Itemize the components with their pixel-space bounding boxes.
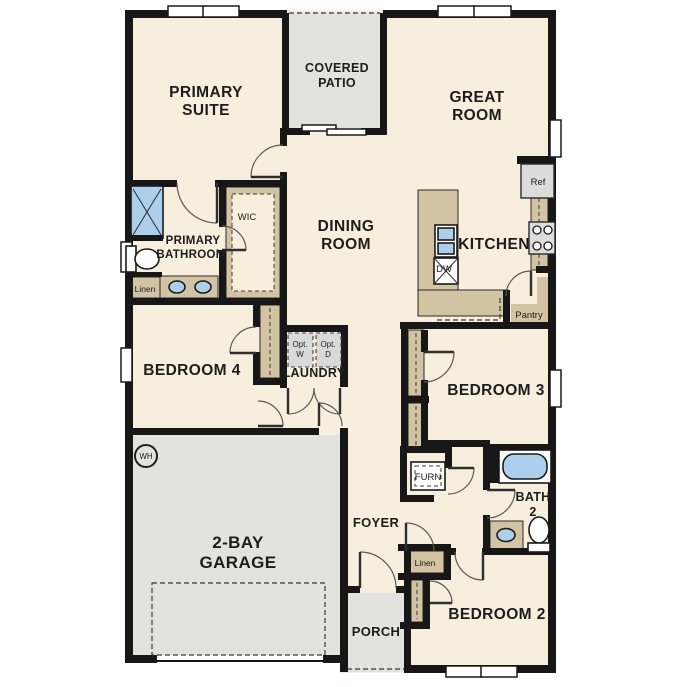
wic-floor [232,194,274,291]
label-pantry: Pantry [515,310,543,321]
label-great-room-line2: ROOM [452,107,502,124]
bathtub [503,454,547,479]
label-opt-dryer-line1: Opt. [320,340,335,349]
window-great-room-top-1 [438,6,475,17]
label-primary-bath-line1: PRIMARY [166,235,221,247]
floor-plan-page: PRIMARY SUITE COVERED PATIO GREAT ROOM D… [0,0,687,687]
window-primary-suite-1 [168,6,204,17]
label-furnace: FURN [415,472,442,483]
vanity-sink-2 [195,281,211,293]
label-wic: WIC [238,212,257,223]
label-porch: PORCH [352,624,400,639]
vanity-sink-1 [169,281,185,293]
window-great-room-right [550,120,561,157]
label-bath2-line2: 2 [529,505,536,519]
burner-1 [533,226,541,234]
window-bedroom2-bottom-1 [446,666,482,677]
patio-sliding-door-panel-2 [327,129,366,135]
label-covered-patio-line1: COVERED [305,61,369,75]
label-laundry: LAUNDRY [283,366,346,380]
label-linen-bath: Linen [135,284,156,294]
window-great-room-top-2 [474,6,511,17]
toilet-bath2-base [528,543,550,552]
label-bedroom2: BEDROOM 2 [448,606,545,623]
label-linen-hall: Linen [415,558,436,568]
label-primary-suite-line1: PRIMARY [169,84,243,101]
burner-4 [544,242,552,250]
floor-plan-canvas: PRIMARY SUITE COVERED PATIO GREAT ROOM D… [0,0,687,687]
label-primary-bath-line2: BATHROOM [156,249,225,261]
kitchen-sink-basin-1 [438,228,454,240]
label-bedroom4: BEDROOM 4 [143,362,240,379]
label-water-heater: WH [139,452,153,461]
label-foyer: FOYER [353,515,400,530]
kitchen-island-counter-return [418,290,508,316]
label-kitchen: KITCHEN [458,236,530,253]
label-covered-patio-line2: PATIO [318,76,356,90]
window-primary-suite-2 [203,6,239,17]
label-garage-line1: 2-BAY [212,533,264,552]
label-dining-line2: ROOM [321,236,371,253]
label-primary-suite-line2: SUITE [182,102,230,119]
window-bedroom2-bottom-2 [481,666,517,677]
label-dishwasher: DW [436,264,452,275]
label-garage-line2: GARAGE [199,553,276,572]
window-bedroom4-left [121,348,132,382]
label-great-room-line1: GREAT [449,89,504,106]
window-bedroom3-right [550,370,561,407]
toilet-bath2-bowl [529,517,549,543]
shower-curb [131,235,163,241]
label-bath2-line1: BATH [516,490,551,504]
label-refrigerator: Ref [531,177,546,188]
exterior-mask [125,663,340,687]
burner-3 [533,242,541,250]
kitchen-sink-basin-2 [438,243,454,254]
label-opt-dryer-line2: D [325,350,331,359]
label-opt-washer-line2: W [296,350,304,359]
label-dining-line1: DINING [318,218,375,235]
label-bedroom3: BEDROOM 3 [447,382,544,399]
label-opt-washer-line1: Opt. [292,340,307,349]
burner-2 [544,226,552,234]
bath2-sink [497,529,515,542]
